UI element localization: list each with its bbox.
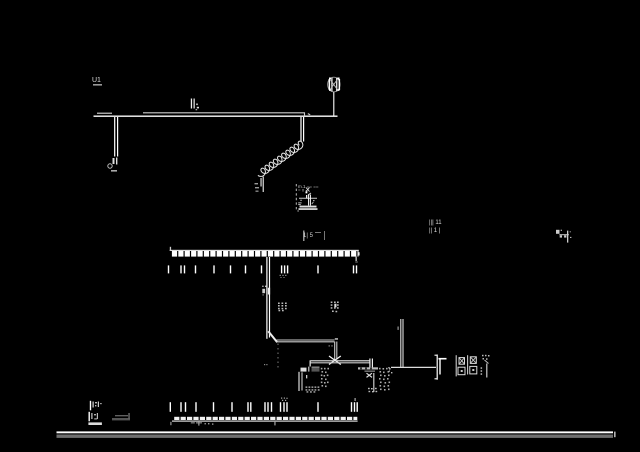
svg-text:U1: U1 (92, 77, 101, 84)
svg-text:||| 11: ||| 11 (429, 220, 442, 226)
svg-text:|| 1 |: || 1 | (429, 228, 441, 234)
svg-text:1| 5: 1| 5 (303, 233, 314, 239)
